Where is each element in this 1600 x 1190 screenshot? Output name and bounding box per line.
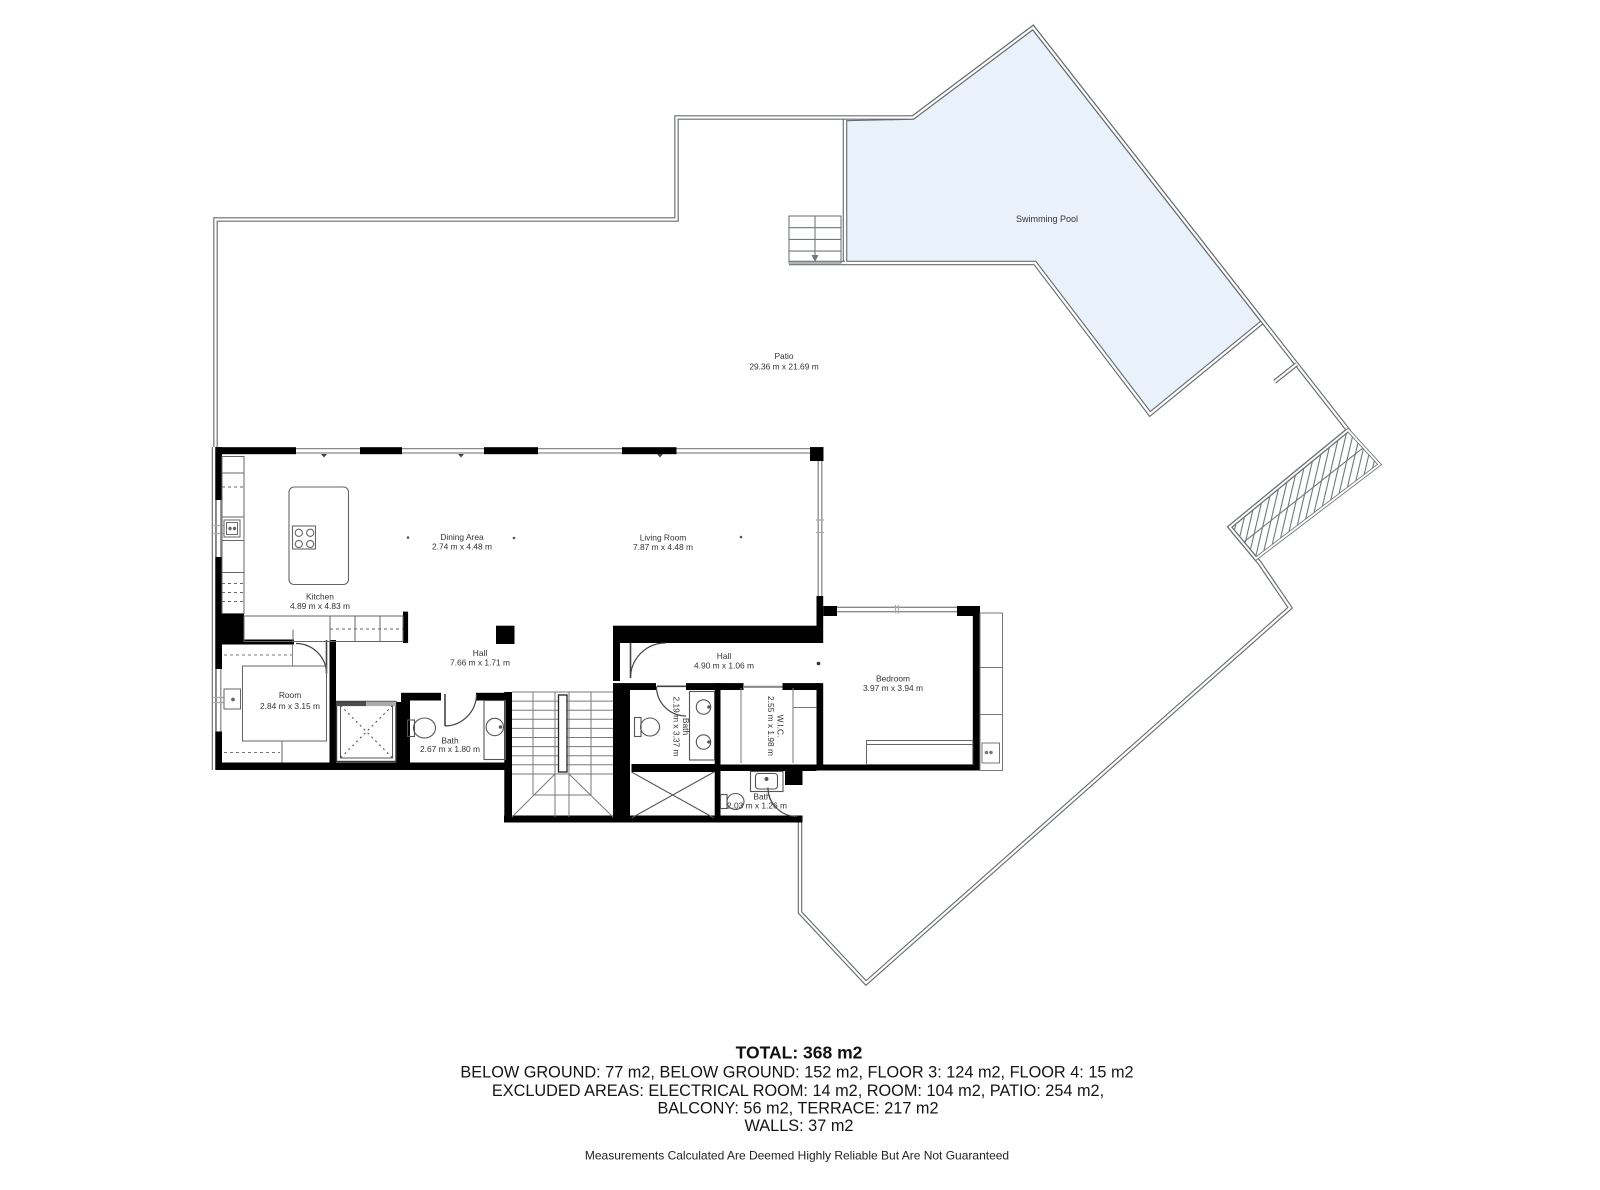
svg-text:Living Room: Living Room	[640, 533, 687, 543]
svg-text:2.55 m x 1.98 m: 2.55 m x 1.98 m	[766, 696, 776, 756]
svg-text:Kitchen: Kitchen	[306, 592, 334, 602]
svg-text:Hall: Hall	[473, 648, 488, 658]
svg-text:4.90 m x 1.06 m: 4.90 m x 1.06 m	[694, 661, 754, 671]
svg-text:Measurements Calculated Are De: Measurements Calculated Are Deemed Highl…	[585, 1149, 1009, 1163]
svg-text:Swimming Pool: Swimming Pool	[1016, 214, 1078, 224]
svg-text:4.89 m x 4.83 m: 4.89 m x 4.83 m	[290, 601, 350, 611]
svg-text:7.87 m x 4.48 m: 7.87 m x 4.48 m	[633, 542, 693, 552]
svg-text:Hall: Hall	[717, 651, 732, 661]
svg-text:Bedroom: Bedroom	[876, 674, 910, 684]
svg-text:TOTAL: 368 m2: TOTAL: 368 m2	[736, 1043, 863, 1063]
svg-text:Bath: Bath	[681, 718, 691, 736]
svg-text:EXCLUDED AREAS: ELECTRICAL ROO: EXCLUDED AREAS: ELECTRICAL ROOM: 14 m2, …	[492, 1082, 1104, 1100]
svg-text:Patio: Patio	[774, 351, 793, 361]
svg-text:7.66 m x 1.71 m: 7.66 m x 1.71 m	[450, 658, 510, 668]
svg-text:W.I.C.: W.I.C.	[776, 715, 786, 738]
svg-text:3.97 m x 3.94 m: 3.97 m x 3.94 m	[863, 683, 923, 693]
svg-text:Dining Area: Dining Area	[440, 532, 484, 542]
svg-text:BELOW GROUND: 77 m2, BELOW GRO: BELOW GROUND: 77 m2, BELOW GROUND: 152 m…	[460, 1064, 1133, 1082]
svg-text:Room: Room	[279, 690, 301, 700]
svg-text:2.67 m x 1.80 m: 2.67 m x 1.80 m	[420, 744, 480, 754]
svg-text:2.74 m x 4.48 m: 2.74 m x 4.48 m	[432, 542, 492, 552]
svg-text:29.36 m x 21.69 m: 29.36 m x 21.69 m	[749, 362, 818, 372]
svg-text:2.19 m x 3.37 m: 2.19 m x 3.37 m	[672, 696, 682, 756]
svg-text:WALLS: 37 m2: WALLS: 37 m2	[745, 1117, 854, 1135]
svg-text:2.84 m x 3.15 m: 2.84 m x 3.15 m	[260, 701, 320, 711]
svg-text:BALCONY: 56 m2, TERRACE: 217 m: BALCONY: 56 m2, TERRACE: 217 m2	[657, 1100, 938, 1118]
svg-text:2.03 m x 1.26 m: 2.03 m x 1.26 m	[727, 801, 787, 811]
